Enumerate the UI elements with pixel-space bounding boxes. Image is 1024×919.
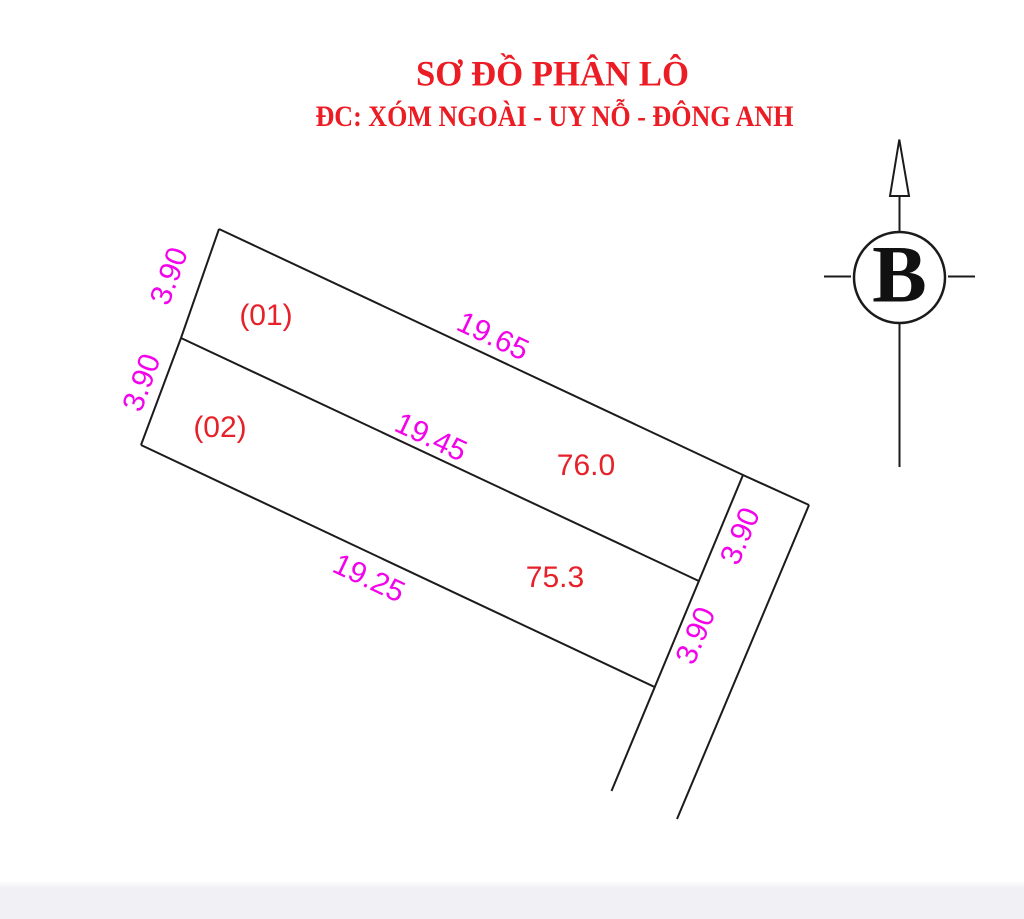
svg-text:SƠ ĐỒ PHÂN LÔ: SƠ ĐỒ PHÂN LÔ [416,53,689,94]
svg-text:ĐC: XÓM NGOÀI - UY NỖ - ĐÔNG A: ĐC: XÓM NGOÀI - UY NỖ - ĐÔNG ANH [316,99,794,133]
svg-text:76.0: 76.0 [557,449,615,482]
svg-text:(01): (01) [239,299,292,332]
svg-text:(02): (02) [193,411,246,444]
svg-text:B: B [872,229,927,320]
svg-text:75.3: 75.3 [526,561,584,594]
